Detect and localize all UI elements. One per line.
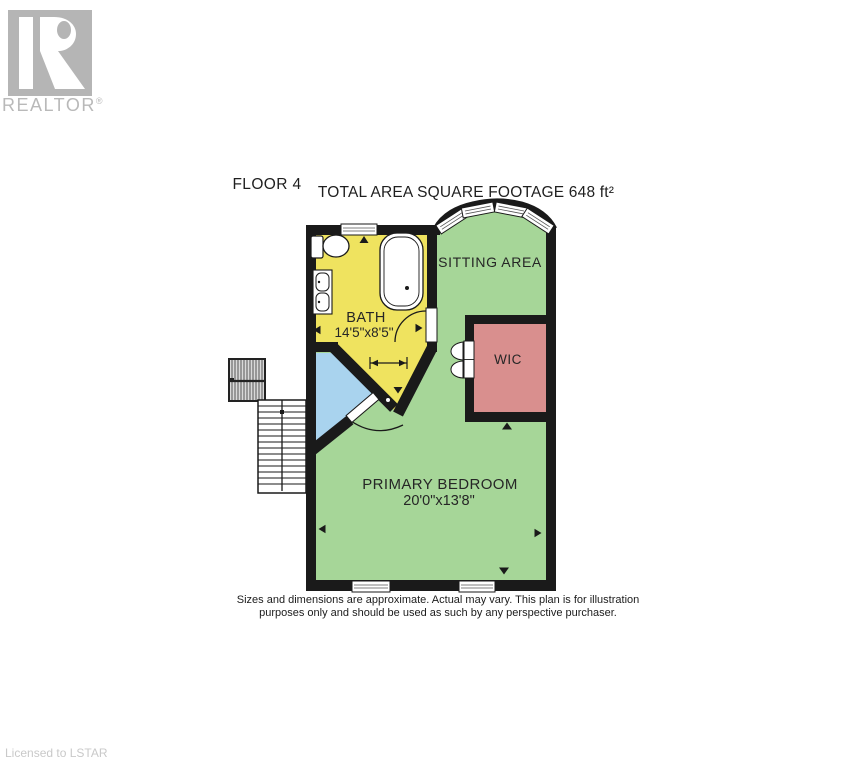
wic-label: WIC bbox=[494, 352, 522, 367]
primary-bedroom-label: PRIMARY BEDROOM bbox=[362, 476, 517, 493]
floorplan-drawing bbox=[0, 0, 864, 768]
bathtub-icon bbox=[380, 233, 423, 310]
staircase-icon bbox=[258, 400, 306, 493]
licensed-label: Licensed to LSTAR bbox=[5, 746, 108, 760]
stair-landing-icon bbox=[229, 359, 265, 401]
disclaimer-line2: purposes only and should be used as such… bbox=[218, 607, 658, 620]
primary-bedroom-dimensions: 20'0"x13'8" bbox=[403, 493, 474, 509]
sink-vanity-icon bbox=[313, 270, 332, 314]
bath-dimensions: 14'5"x8'5" bbox=[334, 325, 393, 340]
bath-label: BATH bbox=[346, 310, 386, 326]
toilet-icon bbox=[311, 235, 349, 258]
room-wic-area bbox=[474, 324, 546, 412]
bedroom-window-right-icon bbox=[459, 581, 495, 592]
sitting-area-label: SITTING AREA bbox=[438, 254, 542, 270]
disclaimer: Sizes and dimensions are approximate. Ac… bbox=[218, 594, 658, 620]
bedroom-window-left-icon bbox=[352, 581, 390, 592]
disclaimer-line1: Sizes and dimensions are approximate. Ac… bbox=[218, 594, 658, 607]
bath-window-icon bbox=[341, 224, 377, 235]
